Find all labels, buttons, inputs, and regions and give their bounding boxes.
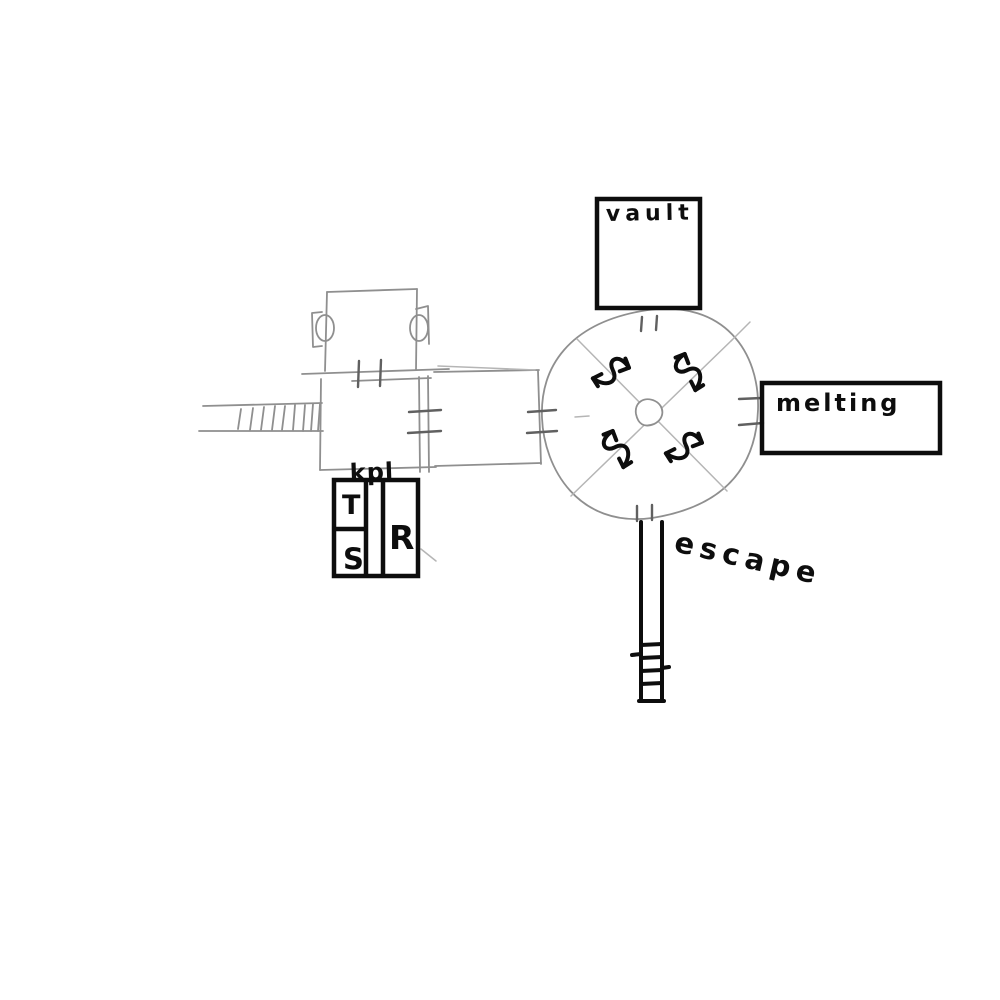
s-arrow-icon bbox=[669, 351, 709, 391]
door-knob-icon bbox=[312, 312, 334, 347]
rotunda-center-hub bbox=[636, 399, 663, 425]
cell-r-label: R bbox=[389, 518, 414, 557]
cell-s-label: S bbox=[343, 542, 364, 576]
melting-label: melting bbox=[776, 389, 900, 417]
vault-label: vault bbox=[606, 200, 694, 227]
west-corridor bbox=[199, 403, 323, 431]
map-drawing: vault melting escape kpl T S R bbox=[0, 0, 1000, 1000]
door-ticks-rotunda-east bbox=[739, 398, 763, 425]
stray-marks bbox=[421, 416, 589, 561]
cell-t-label: T bbox=[342, 490, 361, 521]
s-arrow-icon bbox=[591, 352, 631, 392]
escape-label: escape bbox=[671, 525, 825, 592]
door-ticks-middle-east bbox=[408, 410, 441, 433]
door-knob-icon bbox=[410, 306, 429, 344]
door-ticks-upper-room bbox=[358, 360, 381, 387]
upper-room-outline bbox=[302, 289, 449, 374]
kpl-label: kpl bbox=[349, 457, 394, 487]
s-arrow-icon bbox=[597, 428, 637, 468]
escape-shaft bbox=[632, 522, 669, 701]
hand-drawn-map: vault melting escape kpl T S R bbox=[0, 0, 1000, 1000]
stair-hatch-marks bbox=[238, 404, 320, 431]
door-ticks-vault bbox=[641, 316, 657, 331]
east-room-outline bbox=[434, 366, 541, 466]
rotunda-circle bbox=[542, 309, 758, 519]
